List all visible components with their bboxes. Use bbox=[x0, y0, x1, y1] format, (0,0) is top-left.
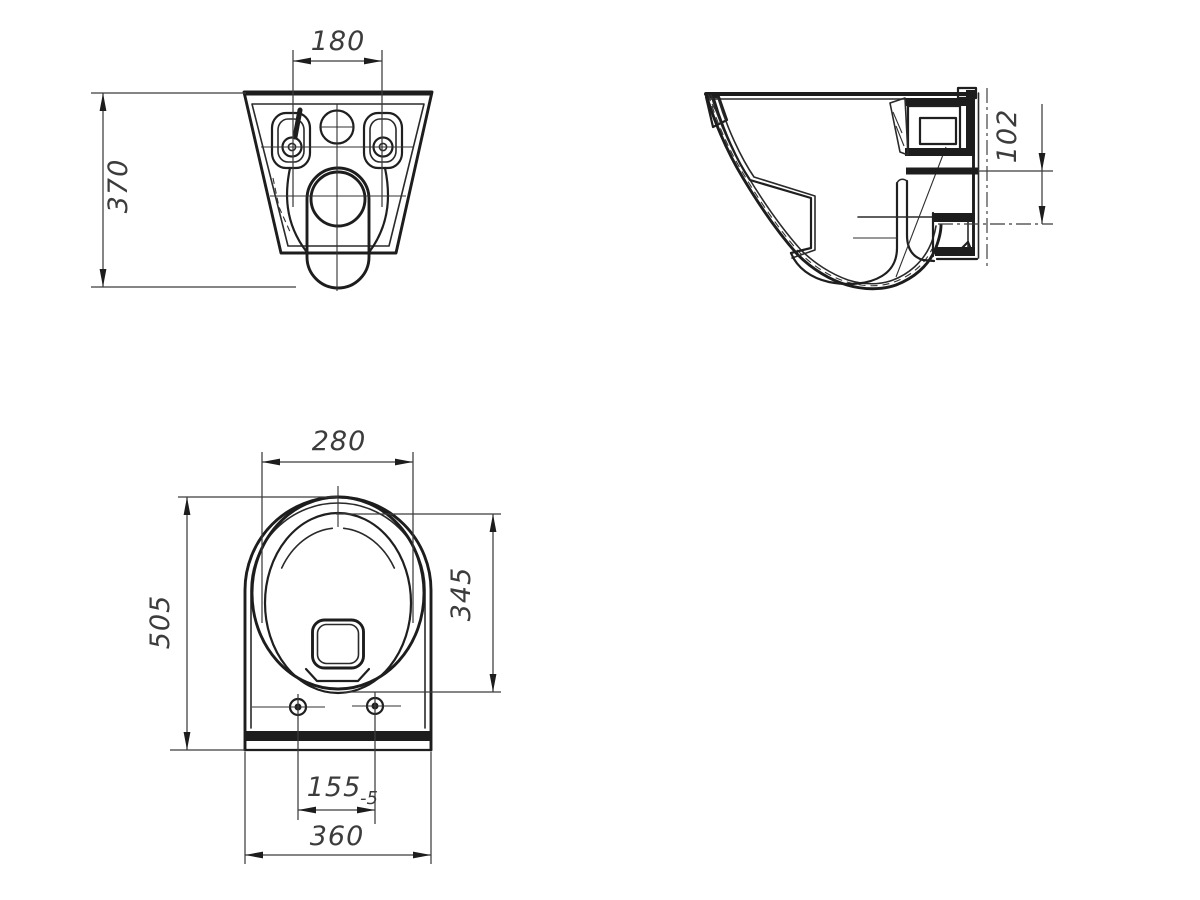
rear-view: 180 370 bbox=[91, 26, 432, 291]
toilet-dimensional-drawing: 180 370 bbox=[0, 0, 1200, 900]
arrowhead-bottom bbox=[100, 269, 107, 287]
dim-label-360: 360 bbox=[310, 821, 365, 852]
drawing-canvas: 180 370 bbox=[0, 0, 1200, 900]
mounting-slot-right bbox=[364, 113, 402, 168]
arrowhead-bottom bbox=[184, 732, 191, 750]
side-wall-dash-texture bbox=[709, 95, 933, 286]
diagonal-construction-line bbox=[896, 147, 946, 277]
arrowhead-top bbox=[490, 514, 497, 532]
dimension-360: 360 bbox=[245, 752, 431, 864]
weir-channel-line bbox=[907, 181, 934, 261]
rear-left-leg-curve bbox=[287, 168, 306, 251]
dimension-155: 155 -5 bbox=[298, 692, 378, 824]
arrowhead-right bbox=[395, 459, 413, 466]
dim-label-280: 280 bbox=[312, 426, 367, 457]
arrowhead-right bbox=[364, 58, 382, 65]
top-body-inner-contour bbox=[251, 503, 425, 728]
dim-label-102: 102 bbox=[992, 109, 1023, 164]
inlet-top-band bbox=[905, 98, 975, 106]
inlet-spud-assembly bbox=[890, 88, 976, 156]
mounting-slot-left bbox=[272, 110, 310, 168]
dim-label-345: 345 bbox=[446, 567, 477, 622]
arrowhead-left bbox=[298, 807, 316, 814]
bowl-rim-inner bbox=[265, 513, 411, 693]
top-body-outline bbox=[245, 497, 431, 750]
bowl-interior-step-inner bbox=[718, 98, 815, 258]
inlet-bottom-band bbox=[905, 148, 973, 156]
dimension-102: 102 bbox=[906, 104, 1053, 224]
arrowhead-left bbox=[293, 58, 311, 65]
top-view: 280 505 345 155 -5 bbox=[145, 426, 501, 864]
dim-label-505: 505 bbox=[145, 595, 176, 650]
drain-dam-line bbox=[306, 669, 369, 681]
weir-channel-top bbox=[897, 179, 907, 183]
dim-label-180: 180 bbox=[311, 26, 366, 57]
inlet-level-band bbox=[906, 168, 978, 175]
arrowhead-left bbox=[245, 852, 263, 859]
arrowhead-right bbox=[413, 852, 431, 859]
bowl-opening-arc-left bbox=[282, 528, 333, 568]
side-view: 102 bbox=[706, 88, 1053, 289]
arrowhead-top bbox=[184, 497, 191, 515]
fixing-hole-right bbox=[352, 698, 401, 714]
drain-opening-inner bbox=[318, 625, 359, 664]
inlet-box-inner bbox=[920, 118, 956, 144]
side-inner-shell bbox=[711, 95, 936, 284]
drain-spout-outline bbox=[307, 168, 369, 288]
dim-label-370: 370 bbox=[103, 159, 134, 214]
rear-right-leg-curve bbox=[370, 168, 388, 251]
rear-centerlines bbox=[261, 104, 414, 291]
arrowhead-left bbox=[262, 459, 280, 466]
arrowhead-lower bbox=[1039, 206, 1046, 224]
bowl-interior-step bbox=[714, 99, 811, 253]
fixing-hole-left bbox=[252, 699, 325, 715]
outlet-upper-band bbox=[933, 213, 975, 222]
dim-label-155: 155 bbox=[307, 772, 362, 803]
bowl-opening-arc-right bbox=[344, 528, 395, 568]
dimension-505: 505 bbox=[145, 497, 338, 750]
arrowhead-bottom bbox=[490, 674, 497, 692]
arrowhead-upper bbox=[1039, 153, 1046, 171]
back-plate-band bbox=[244, 731, 432, 741]
arrowhead-top bbox=[100, 93, 107, 111]
back-mounting-face bbox=[974, 88, 988, 268]
outlet-lower-band bbox=[935, 247, 975, 256]
sump-outline bbox=[791, 183, 897, 284]
dim-label-155-tolerance: -5 bbox=[360, 788, 378, 809]
drain-outlet-circle bbox=[311, 172, 365, 226]
